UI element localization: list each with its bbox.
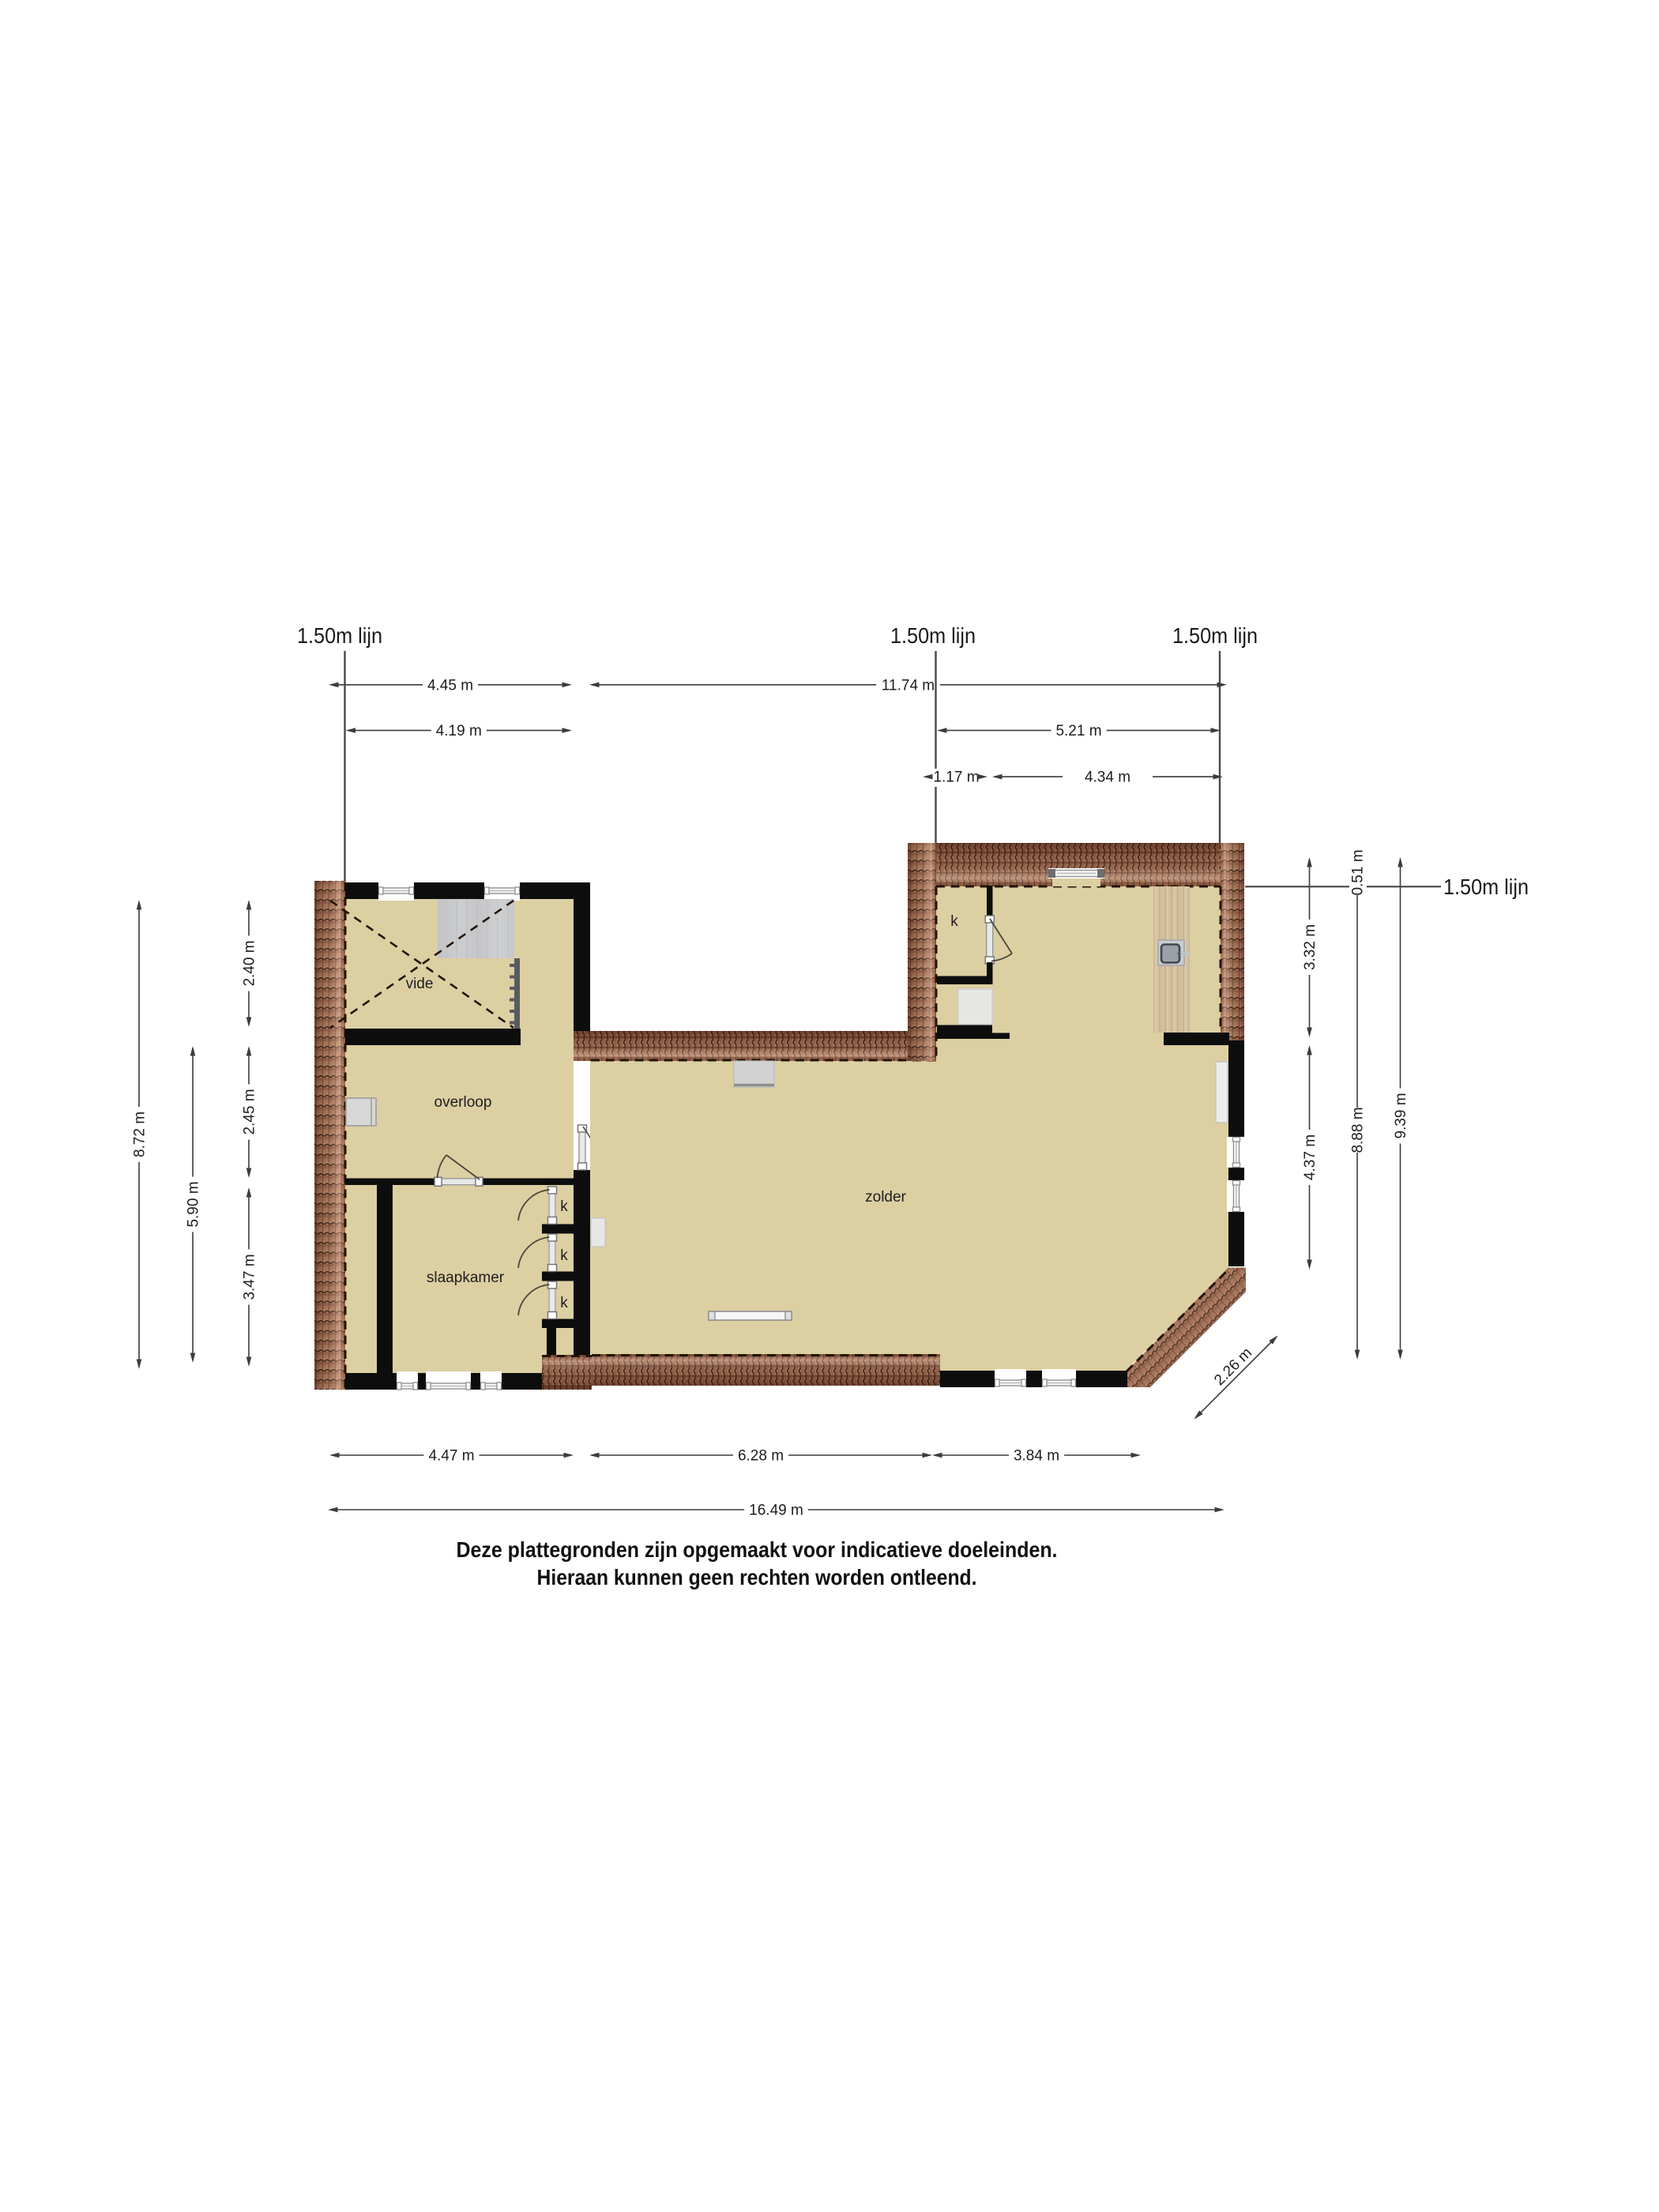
svg-text:16.49 m: 16.49 m [749,1503,803,1519]
svg-text:k: k [560,1247,568,1264]
svg-text:4.34 m: 4.34 m [1085,769,1130,786]
svg-text:11.74 m: 11.74 m [882,677,935,694]
svg-text:zolder: zolder [865,1189,906,1206]
svg-text:5.21 m: 5.21 m [1055,723,1101,739]
svg-text:4.19 m: 4.19 m [436,723,482,739]
svg-text:Deze plattegronden zijn opgema: Deze plattegronden zijn opgemaakt voor i… [457,1537,1058,1562]
svg-text:8.88 m: 8.88 m [1350,1107,1367,1153]
svg-text:4.47 m: 4.47 m [428,1448,474,1465]
svg-text:2.40 m: 2.40 m [242,940,258,986]
svg-text:k: k [950,913,958,930]
svg-text:8.72 m: 8.72 m [132,1112,149,1157]
svg-text:vide: vide [406,976,434,992]
svg-text:2.45 m: 2.45 m [242,1089,258,1134]
svg-text:3.84 m: 3.84 m [1014,1448,1059,1465]
svg-text:5.90 m: 5.90 m [186,1181,202,1227]
svg-text:0.51 m: 0.51 m [1350,849,1367,895]
svg-text:1.50m lijn: 1.50m lijn [1172,623,1258,648]
svg-text:1.17 m: 1.17 m [933,769,979,786]
svg-text:3.32 m: 3.32 m [1302,924,1319,970]
svg-text:k: k [560,1295,568,1311]
svg-text:1.50m lijn: 1.50m lijn [890,623,976,648]
svg-text:slaapkamer: slaapkamer [427,1270,505,1286]
svg-text:4.37 m: 4.37 m [1302,1134,1319,1180]
svg-text:Hieraan kunnen geen rechten wo: Hieraan kunnen geen rechten worden ontle… [537,1565,977,1589]
svg-text:1.50m lijn: 1.50m lijn [297,623,382,648]
svg-text:9.39 m: 9.39 m [1393,1093,1409,1138]
svg-text:3.47 m: 3.47 m [242,1254,258,1300]
svg-text:overloop: overloop [434,1094,492,1111]
svg-text:1.50m lijn: 1.50m lijn [1443,875,1529,899]
svg-text:6.28 m: 6.28 m [738,1448,784,1465]
svg-text:4.45 m: 4.45 m [427,677,473,694]
svg-text:k: k [560,1198,568,1215]
